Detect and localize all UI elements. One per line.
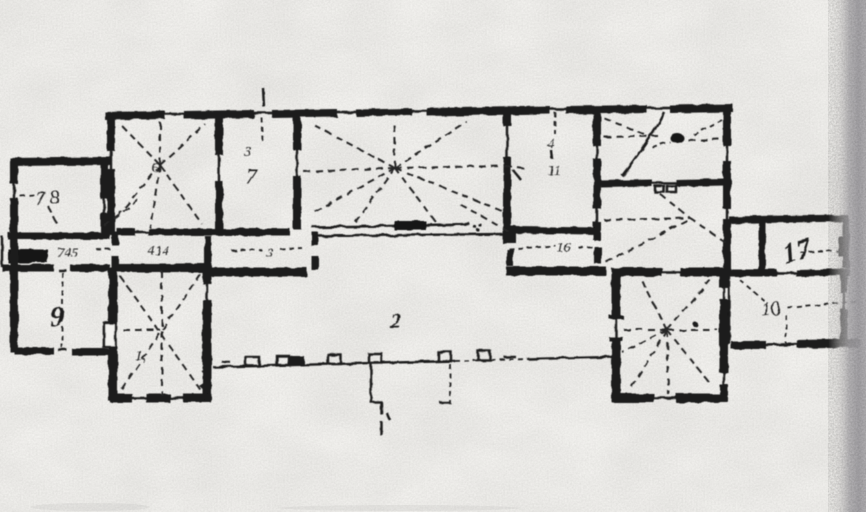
svg-text:9: 9: [50, 301, 65, 333]
svg-text:3: 3: [243, 144, 252, 160]
svg-text:16: 16: [557, 241, 571, 256]
svg-text:10: 10: [760, 298, 782, 321]
svg-text:745: 745: [57, 246, 78, 261]
svg-text:2: 2: [389, 308, 401, 333]
svg-text:6: 6: [152, 161, 159, 176]
svg-text:1,: 1,: [135, 348, 146, 364]
svg-text:4: 4: [547, 136, 555, 152]
svg-text:414: 414: [148, 244, 169, 259]
svg-text:7: 7: [246, 164, 258, 189]
svg-text:11: 11: [548, 164, 561, 179]
svg-text:7 8: 7 8: [35, 187, 61, 210]
svg-text:3: 3: [265, 246, 273, 261]
